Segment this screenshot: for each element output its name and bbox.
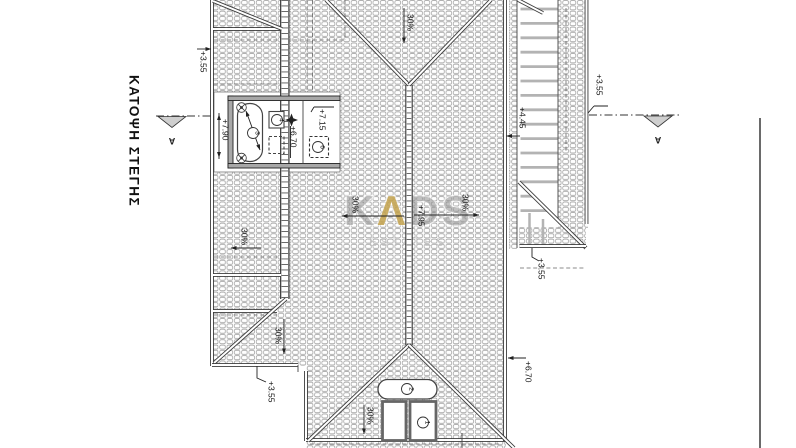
- level-terrace-light: +6.70: [289, 126, 299, 148]
- level-bottom-left: +3.55: [267, 381, 277, 403]
- level-top-left: +3.55: [199, 51, 209, 73]
- callout-6: 6: [319, 145, 326, 149]
- level-bottom-right: +6.70: [524, 361, 534, 383]
- callout-2: 2: [408, 387, 415, 391]
- roof-plan-sheet: KΛDS KΛDS ESTATES: [0, 0, 796, 448]
- section-label-left: A: [168, 136, 175, 146]
- fan-symbol-bottom: [237, 153, 247, 163]
- section-arrow-right: [644, 116, 672, 127]
- callout-1: 1: [424, 421, 431, 425]
- slope-label-left-lower: 30%: [274, 327, 284, 344]
- slope-label-center-left: 30%: [351, 196, 361, 213]
- drawing-title: ΚΑΤΟΨΗ ΣΤΕΓΗΣ: [127, 75, 142, 207]
- slope-label-left-upper: 30%: [240, 228, 250, 245]
- level-terrace-parapet: +7.90: [221, 119, 231, 141]
- lower-left-gap: [290, 366, 306, 448]
- solar-panel-left: [383, 402, 407, 441]
- slope-label-top: 30%: [406, 14, 416, 31]
- callout-3: 3: [254, 131, 261, 135]
- level-ridge: +7.95: [417, 205, 427, 227]
- terrace-wall-bottom: [228, 164, 340, 169]
- section-arrow-left: [158, 117, 186, 128]
- level-right-mid: +3.55: [537, 258, 547, 280]
- section-label-right: A: [654, 135, 661, 145]
- roof-plan-drawing: KΛDS KΛDS ESTATES: [0, 0, 796, 448]
- level-terrace-mid: +7.15: [318, 109, 328, 131]
- slope-label-center-right: 30%: [461, 194, 471, 211]
- terrace-wall-top: [228, 96, 340, 101]
- slope-label-bottom: 30%: [366, 407, 376, 424]
- level-pergola: +4.45: [518, 107, 528, 129]
- fan-symbol-top: [237, 103, 247, 113]
- callout-4: 4: [278, 118, 285, 122]
- right-roof-strip: [558, 0, 588, 228]
- right-edge-band: [509, 0, 517, 249]
- level-right-top: +3.55: [595, 74, 605, 96]
